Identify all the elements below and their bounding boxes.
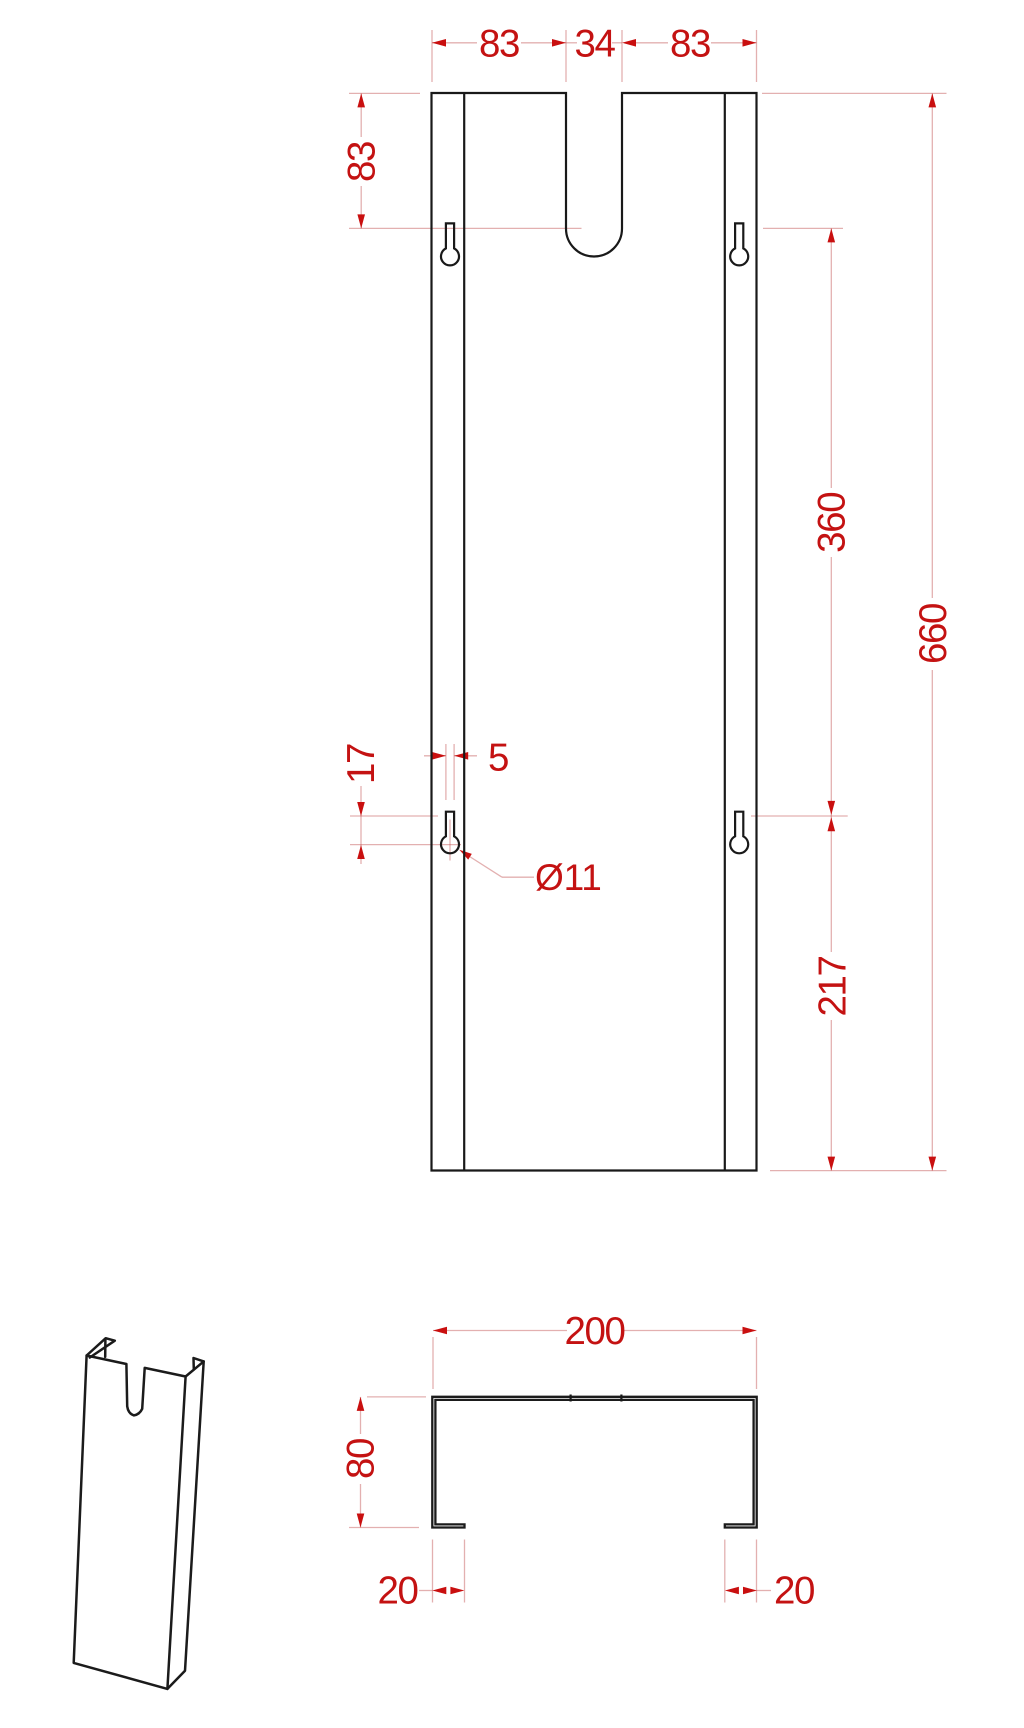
svg-text:217: 217 xyxy=(812,956,855,1016)
svg-text:Ø11: Ø11 xyxy=(535,857,602,898)
svg-text:80: 80 xyxy=(340,1439,383,1479)
svg-text:83: 83 xyxy=(479,23,519,66)
svg-text:360: 360 xyxy=(811,493,854,553)
svg-text:20: 20 xyxy=(377,1570,417,1613)
svg-text:660: 660 xyxy=(912,604,955,664)
svg-text:83: 83 xyxy=(341,142,384,182)
svg-text:200: 200 xyxy=(564,1310,624,1353)
svg-text:17: 17 xyxy=(340,744,383,784)
svg-text:20: 20 xyxy=(774,1570,814,1613)
svg-text:5: 5 xyxy=(488,737,508,780)
svg-text:34: 34 xyxy=(574,23,615,66)
svg-text:83: 83 xyxy=(670,23,710,66)
